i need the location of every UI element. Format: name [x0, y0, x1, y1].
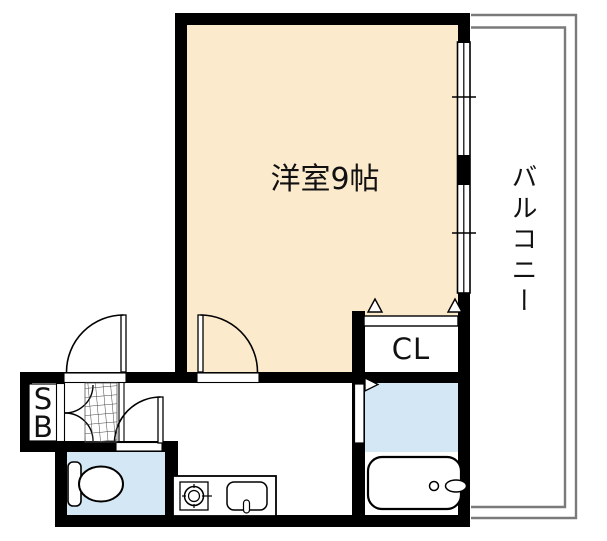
closet-label: CL	[381, 332, 441, 366]
bathroom-floor	[365, 383, 458, 452]
toilet-door-icon	[115, 397, 164, 443]
kitchen-counter	[173, 476, 276, 516]
balcony-label: バルコニー	[504, 163, 541, 339]
stove-burner-icon	[180, 482, 212, 510]
kitchen-sink-icon	[227, 482, 267, 513]
closet-door-track	[364, 316, 458, 326]
genkan-tile-icon	[85, 383, 117, 442]
shoe-box-label: SB	[28, 385, 58, 441]
entrance-door-icon	[67, 315, 127, 372]
main-room-label: 洋室9帖	[250, 162, 400, 198]
bathtub-icon	[368, 457, 467, 509]
floor-plan: 洋室9帖 バルコニー CL SB	[0, 0, 607, 541]
